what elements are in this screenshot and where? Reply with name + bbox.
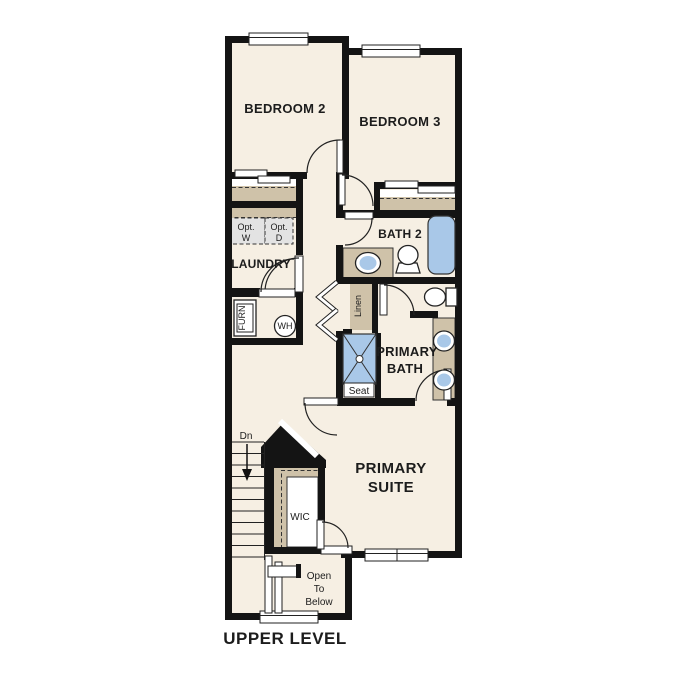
label-opt-washer-1: Opt. (237, 222, 254, 232)
room-label-bedroom3: BEDROOM 3 (359, 114, 440, 129)
label-seat: Seat (349, 386, 370, 397)
floor-plan-page: BEDROOM 2 BEDROOM 3 BATH 2 LAUNDRY PRIMA… (0, 0, 687, 687)
primary-toilet-icon (425, 288, 458, 306)
room-label-primary-bath-1: PRIMARY (376, 344, 438, 359)
bedroom3-window (362, 45, 420, 57)
room-label-wic: WIC (290, 512, 309, 523)
label-furnace: FURN (237, 306, 247, 331)
primary-suite-window (365, 549, 428, 561)
bath2-toilet-icon (396, 246, 420, 274)
label-opt-washer-2: W (242, 233, 251, 243)
label-open-below-3: Below (305, 597, 333, 608)
label-water-heater: WH (278, 321, 293, 331)
plan-title: UPPER LEVEL (223, 629, 347, 648)
label-open-below-1: Open (307, 571, 331, 582)
label-open-below-2: To (314, 584, 325, 595)
stairwell-overlook-opening (321, 546, 352, 554)
bath2-sink-icon (356, 253, 381, 274)
room-label-primary-suite-1: PRIMARY (355, 460, 426, 477)
room-label-bath2: BATH 2 (378, 227, 422, 241)
laundry-shelf (228, 207, 296, 218)
floor-plan: BEDROOM 2 BEDROOM 3 BATH 2 LAUNDRY PRIMA… (0, 0, 687, 687)
wic-shelving (274, 462, 321, 553)
shower-icon (343, 334, 376, 384)
room-label-primary-bath-2: BATH (387, 361, 423, 376)
bedroom2-window (249, 33, 308, 45)
room-label-primary-suite-2: SUITE (368, 479, 414, 496)
bathtub-icon (428, 216, 455, 274)
label-opt-dryer-2: D (276, 233, 283, 243)
room-label-laundry: LAUNDRY (231, 257, 291, 271)
label-stairs-down: Dn (240, 431, 253, 442)
primary-sink2-icon (434, 370, 455, 390)
label-opt-dryer-1: Opt. (270, 222, 287, 232)
room-label-bedroom2: BEDROOM 2 (244, 101, 325, 116)
label-linen: Linen (353, 295, 363, 317)
